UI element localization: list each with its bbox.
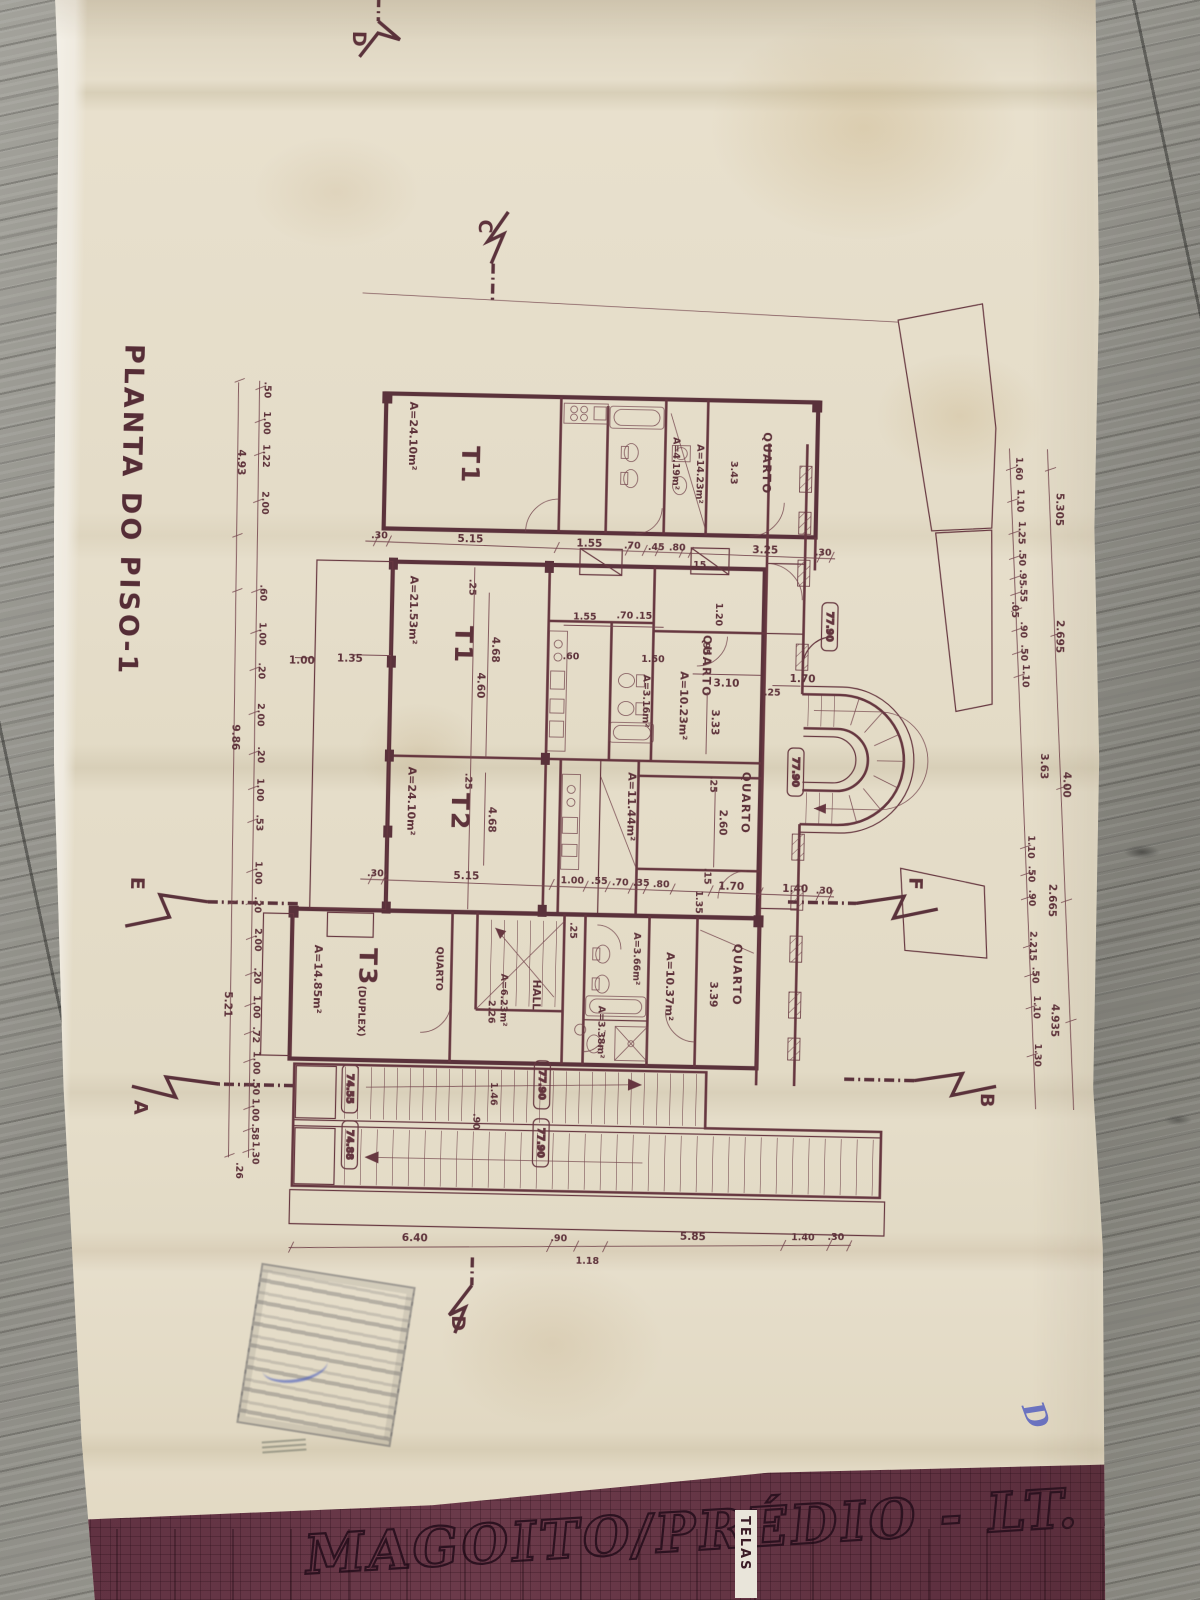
dim-label: .35	[633, 878, 650, 889]
room-label: T2	[445, 793, 475, 832]
dim-label: 1.10	[1025, 835, 1036, 859]
site-boundary	[349, 291, 1001, 958]
dim-label: .90	[1026, 890, 1037, 907]
area-label: A=10.37m²	[662, 952, 676, 1021]
dim-label: 1.55	[576, 537, 602, 550]
dim-label: .15	[701, 868, 712, 885]
dim-chain-mid: .30 5.15 1.00 .55 .70 .35 .80 1.35 1.70 …	[360, 868, 835, 917]
floor-plan-drawing: PLANTA DO PISO-1 D C E A	[0, 0, 1200, 1600]
dim-label: .15	[635, 611, 652, 622]
level-badge: 77.90	[536, 1070, 548, 1101]
dim-label: 1.10	[1031, 995, 1042, 1019]
dim-label: .20	[255, 662, 266, 679]
dim-label: 3.39	[707, 981, 720, 1007]
marker-letter: A	[129, 1100, 151, 1115]
level-badge: 74.55	[344, 1074, 356, 1104]
dim-label: .58	[249, 1123, 260, 1140]
dim-label: .25	[764, 687, 781, 698]
dim-label: 3.43	[728, 461, 739, 485]
area-label: A=10.23m²	[676, 671, 690, 740]
area-label: A=11.44m²	[624, 772, 638, 841]
marker-letter: D	[447, 1315, 469, 1331]
dim-label: 1.35	[337, 652, 363, 665]
dim-label: 1.10	[1014, 489, 1025, 513]
dim-label: .50	[1025, 866, 1036, 883]
area-label: A=24.10m²	[406, 401, 420, 470]
area-label: A=3.38m²	[595, 1006, 607, 1059]
dim-label: .25	[462, 773, 473, 790]
dim-label: 1.00	[250, 1051, 261, 1075]
marker-letter: F	[904, 877, 926, 890]
dim-label: .45	[648, 542, 665, 553]
area-label: A=3.66m²	[630, 932, 642, 985]
dim-label: .90	[550, 1233, 567, 1244]
dim-label: .53	[253, 814, 264, 831]
dim-label: .50	[1016, 549, 1027, 566]
dim-label: 3.33	[708, 709, 721, 735]
area-label: A=3.16m²	[640, 674, 652, 727]
dim-chain-right: 1.60 1.10 1.25 .50 .95 .55 .05 .90 .50 1…	[993, 448, 1089, 1110]
dim-label: 3.63	[1038, 753, 1051, 779]
dim-label: 1.00	[289, 654, 315, 667]
dim-label: 2.215	[1027, 931, 1039, 961]
level-badge: 74.88	[343, 1130, 355, 1161]
dim-label: 1.00	[261, 411, 272, 435]
photo-scene: PLANTA DO PISO-1 D C E A	[0, 0, 1200, 1600]
dim-label: 4.60	[474, 672, 487, 698]
dim-label: 1.10	[1019, 664, 1030, 688]
dim-label: .25	[707, 776, 718, 793]
dim-label: 1.40	[782, 883, 808, 896]
dim-label: 3.10	[713, 677, 739, 690]
dim-label: .26	[233, 1162, 244, 1179]
room-label: T3	[353, 948, 383, 987]
dim-label: .05	[1009, 601, 1020, 618]
dim-label: .55	[591, 876, 608, 887]
room-label: QUARTO	[730, 943, 745, 1006]
dim-label: .30	[827, 1232, 844, 1243]
dim-label: .70	[612, 877, 629, 888]
dim-label: 2.26	[485, 1000, 496, 1024]
level-badge: 77.90	[789, 757, 801, 788]
dim-label: .80	[653, 879, 670, 890]
dim-label: 1.25	[1015, 521, 1026, 545]
dim-label: 4.68	[485, 807, 498, 833]
dim-label: 1.70	[789, 673, 815, 686]
dim-label: .50	[1029, 967, 1040, 984]
room-label: QUARTO	[433, 946, 445, 991]
dim-label: 1.30	[1031, 1043, 1042, 1067]
dim-label: 2.665	[1046, 884, 1059, 917]
marker-letter: C	[474, 219, 496, 233]
dim-label: .95	[700, 639, 711, 656]
area-label: A=4.19m²	[670, 437, 682, 490]
dim-label: 3.25	[752, 544, 778, 557]
room-label: (DUPLEX)	[355, 985, 367, 1036]
dim-label: .30	[816, 886, 833, 897]
exterior-stairs	[289, 1064, 887, 1236]
dim-label: 1.18	[575, 1256, 599, 1267]
dim-label: 1.40	[791, 1232, 815, 1243]
area-label: A=14.85m²	[310, 945, 324, 1014]
marker-letter: E	[126, 877, 148, 890]
marker-letter: B	[976, 1093, 998, 1108]
room-label: T1	[449, 626, 479, 665]
dim-label: .30	[367, 868, 384, 879]
approval-stamp	[236, 1263, 415, 1447]
dim-label: 2.60	[716, 809, 729, 835]
dim-label: .50	[261, 381, 272, 398]
dim-label: .25	[567, 922, 578, 939]
dim-label: .20	[255, 746, 266, 763]
level-badge: 77.90	[534, 1128, 546, 1159]
dim-label: 4.68	[489, 637, 502, 663]
area-label: A=24.10m²	[404, 767, 418, 836]
dim-label: 5.305	[1053, 493, 1066, 526]
dim-label: 5.85	[680, 1231, 706, 1244]
dim-label: .20	[251, 967, 262, 984]
dim-label: .50	[250, 1078, 261, 1095]
dim-label: .30	[815, 547, 832, 558]
dim-chain-bottom: 6.40 .90 1.18 5.85 1.40 .30	[288, 1221, 852, 1273]
dim-label: .20	[252, 896, 263, 913]
marker-letter: D	[348, 31, 370, 47]
room-label: HALL	[530, 979, 543, 1010]
dim-label: 2.00	[254, 703, 265, 727]
dim-label: 4.00	[1060, 772, 1073, 798]
dim-label: .55	[1017, 585, 1028, 602]
round-stair	[799, 636, 930, 835]
dim-label: 1.20	[713, 603, 724, 627]
dim-label: 9.86	[229, 724, 242, 750]
dim-label: 1.00	[252, 861, 263, 885]
dim-label: 2.00	[259, 491, 270, 515]
blueprint-paper: PLANTA DO PISO-1 D C E A	[0, 0, 1200, 1600]
room-label: QUARTO	[759, 432, 774, 495]
dim-label: 1.00	[560, 875, 584, 886]
dim-label: 6.40	[402, 1232, 428, 1245]
dim-label: 1.35	[693, 890, 704, 914]
dim-label: 4.935	[1048, 1004, 1061, 1037]
title-block-side-strip: TELAS	[735, 1510, 757, 1598]
room-label: T1	[456, 446, 486, 485]
dim-label: .30	[371, 530, 388, 541]
area-label: A=6.23m²	[497, 974, 509, 1027]
area-label: A=21.53m²	[406, 576, 420, 645]
dim-label: .15	[689, 560, 706, 571]
dim-label: .90	[470, 1113, 481, 1130]
dim-label: 2.695	[1053, 620, 1066, 653]
dim-label: .60	[562, 651, 579, 662]
dim-label: 5.21	[221, 991, 234, 1017]
dim-label: 2.00	[252, 928, 263, 952]
dim-label: 1.00	[249, 1098, 260, 1122]
dim-label: .90	[1017, 621, 1028, 638]
dim-label: .70	[624, 540, 641, 551]
dim-label: 1.30	[249, 1141, 260, 1165]
dim-label: 4.93	[235, 449, 248, 475]
dim-label: 1.00	[256, 622, 267, 646]
duplex-stair	[476, 919, 565, 1011]
dim-label: .95	[1017, 569, 1028, 586]
drawing-title: PLANTA DO PISO-1	[111, 344, 149, 677]
dim-label: 1.50	[641, 654, 665, 665]
room-label: QUARTO	[738, 772, 753, 835]
dim-label: 5.15	[457, 533, 483, 546]
dim-label: .60	[257, 584, 268, 601]
dim-label: .80	[669, 542, 686, 553]
dim-label: 1.00	[254, 778, 265, 802]
dim-label: .25	[466, 579, 477, 596]
dim-label: .72	[250, 1026, 261, 1043]
dim-label: 1.00	[250, 995, 261, 1019]
dim-label: .50	[1018, 644, 1029, 661]
dim-label: 5.15	[453, 870, 479, 883]
dim-label: 1.46	[488, 1082, 499, 1106]
dim-label: 1.70	[718, 880, 744, 893]
dim-label: .70	[616, 610, 633, 621]
dim-chain-left: .50 1.00 1.22 2.00 .60 1.00 .20 2.00 .20…	[218, 378, 277, 1180]
dim-label: 1.60	[1013, 457, 1024, 481]
dim-label: 1.55	[573, 611, 597, 622]
side-strip-label: TELAS	[737, 1516, 752, 1571]
dim-label: 1.22	[260, 444, 271, 468]
level-badge: 77.90	[823, 612, 835, 643]
area-label: A=14.23m²	[693, 444, 705, 504]
